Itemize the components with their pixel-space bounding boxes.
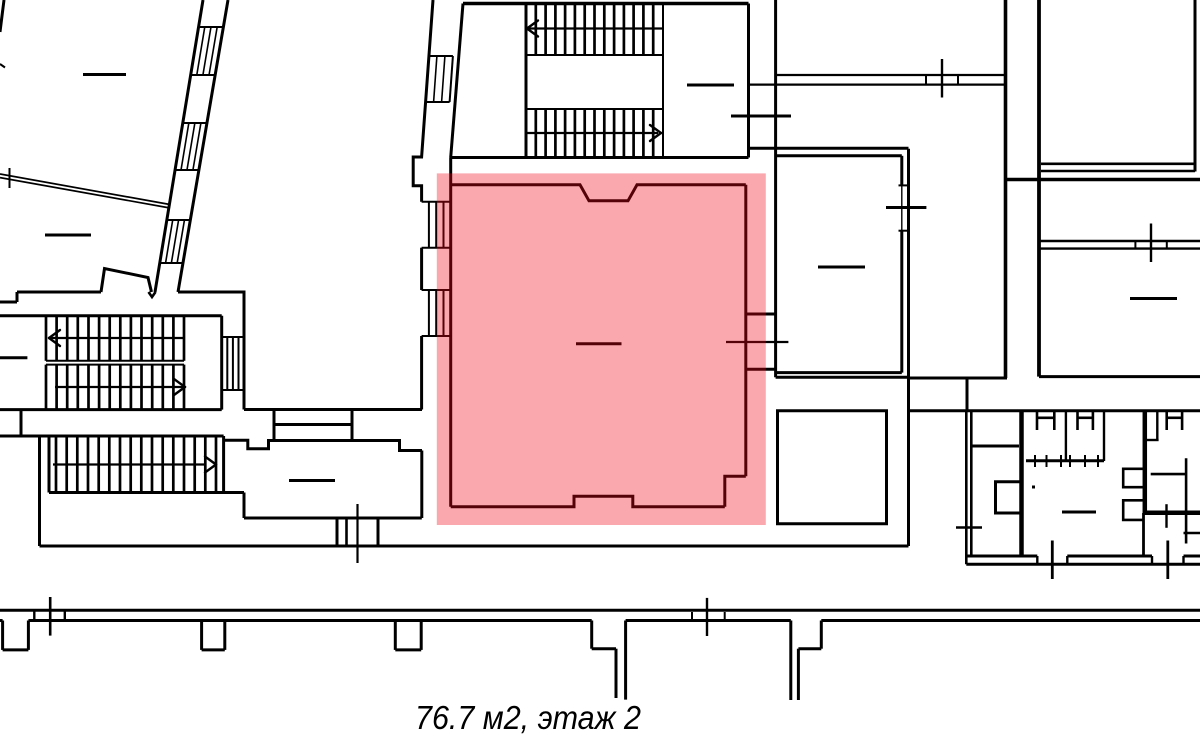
svg-text:76.7 м2, этаж 2: 76.7 м2, этаж 2 [415, 699, 641, 736]
